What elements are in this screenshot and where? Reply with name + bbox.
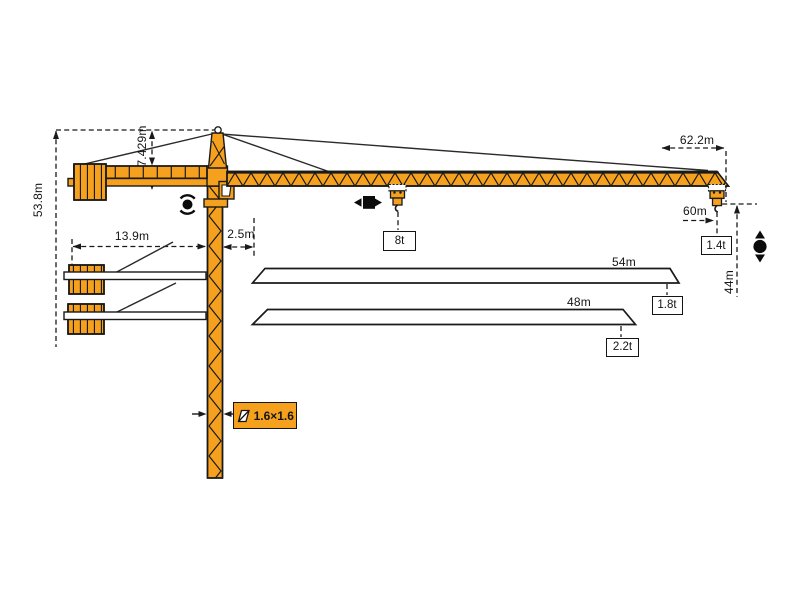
hook-tip bbox=[715, 206, 718, 212]
ballast-beam-1 bbox=[64, 272, 206, 280]
hook-block-mid bbox=[393, 198, 402, 205]
ballast-option-1 bbox=[64, 265, 206, 294]
jib-outline-54m bbox=[253, 269, 680, 284]
apex-pin bbox=[215, 127, 221, 133]
tower-crane bbox=[64, 127, 729, 478]
crane-diagram: 53.8m 7.429m 13.9m 2.5m 62.2m 60m 44m 54… bbox=[0, 0, 800, 600]
hook-hoist-icon bbox=[753, 231, 766, 263]
hook-radius-label: 60m bbox=[683, 204, 707, 218]
hook-height-label: 44m bbox=[722, 270, 736, 294]
capacity-48-value: 2.2t bbox=[613, 341, 632, 353]
jib-outline-48m bbox=[253, 310, 636, 325]
jib-54-label: 54m bbox=[612, 255, 636, 269]
crane-apex bbox=[209, 127, 227, 168]
trolley-mid bbox=[389, 185, 406, 212]
jib-pendant-long bbox=[221, 134, 708, 171]
jib-pendant-short bbox=[219, 133, 330, 172]
jib-48-label: 48m bbox=[567, 295, 591, 309]
mast-section-symbol-icon bbox=[236, 409, 251, 423]
counterjib-radius-label: 13.9m bbox=[115, 229, 149, 243]
tip-capacity-badge: 1.4t bbox=[701, 236, 732, 255]
capacity-48-badge: 2.2t bbox=[606, 338, 639, 357]
ballast-leader-2 bbox=[117, 283, 176, 312]
capacity-54-value: 1.8t bbox=[657, 299, 676, 311]
ballast-beam-2 bbox=[64, 312, 206, 320]
mast-section-value: 1.6×1.6 bbox=[254, 409, 294, 423]
trolley-tip bbox=[709, 185, 726, 213]
hook-block-tip bbox=[713, 198, 722, 205]
trolley-travel-icon bbox=[354, 196, 382, 209]
apex-height-label: 7.429m bbox=[135, 125, 149, 166]
max-capacity-badge: 8t bbox=[383, 231, 416, 251]
max-radius-label: 62.2m bbox=[680, 133, 714, 147]
tip-capacity-value: 1.4t bbox=[706, 240, 725, 252]
crane-mast bbox=[208, 186, 223, 478]
mast-section-badge: 1.6×1.6 bbox=[233, 402, 297, 429]
pendant-lines bbox=[76, 133, 708, 312]
slewing-rotation-icon bbox=[175, 192, 201, 218]
jib-outlines bbox=[253, 269, 680, 325]
tower-offset-label: 2.5m bbox=[227, 227, 254, 241]
hook-mid bbox=[395, 205, 398, 211]
max-capacity-value: 8t bbox=[395, 235, 405, 247]
counterweight-block bbox=[74, 164, 106, 200]
capacity-54-badge: 1.8t bbox=[652, 296, 683, 315]
ballast-option-2 bbox=[64, 304, 206, 334]
crane-jib bbox=[227, 172, 729, 187]
total-height-label: 53.8m bbox=[31, 183, 45, 217]
slewing-platform bbox=[204, 199, 228, 207]
